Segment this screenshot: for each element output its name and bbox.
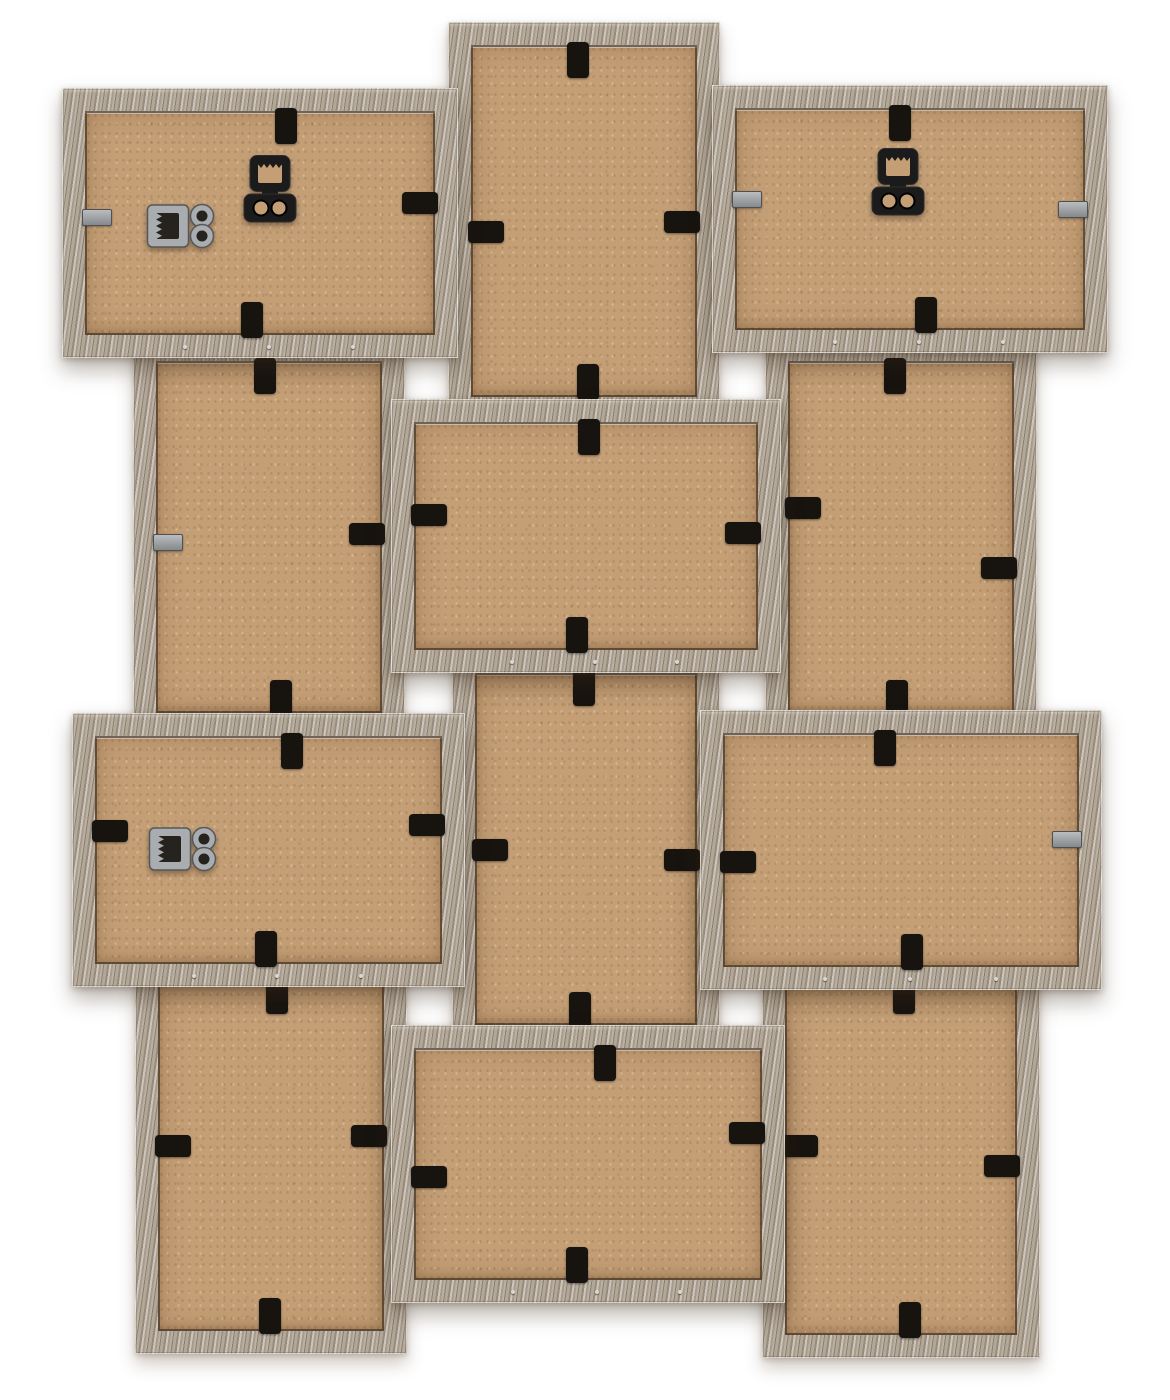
mdf-backing-board bbox=[723, 733, 1079, 967]
retainer-clip bbox=[155, 1135, 191, 1157]
mdf-backing-board bbox=[475, 673, 697, 1025]
retainer-clip bbox=[984, 1155, 1020, 1177]
screw-dot bbox=[351, 345, 355, 349]
retainer-clip bbox=[725, 522, 761, 544]
retainer-clip bbox=[578, 419, 600, 455]
glazing-tab bbox=[82, 209, 112, 226]
mdf-backing-board bbox=[785, 981, 1017, 1335]
retainer-clip bbox=[409, 814, 445, 836]
mdf-backing-board bbox=[158, 981, 384, 1331]
retainer-clip bbox=[92, 820, 128, 842]
mdf-backing-board bbox=[735, 108, 1085, 330]
screw-dot bbox=[192, 974, 196, 978]
screw-dot bbox=[833, 340, 837, 344]
photo-frame-back-top-right bbox=[712, 85, 1108, 353]
retainer-clip bbox=[664, 211, 700, 233]
retainer-clip bbox=[899, 1302, 921, 1338]
sawtooth-ring-hanger-icon bbox=[148, 823, 222, 875]
retainer-clip bbox=[577, 364, 599, 400]
retainer-clip bbox=[915, 297, 937, 333]
retainer-clip bbox=[720, 851, 756, 873]
photo-frame-back-lower-right bbox=[700, 710, 1102, 990]
retainer-clip bbox=[349, 523, 385, 545]
retainer-clip bbox=[567, 42, 589, 78]
photo-frame-back-center bbox=[391, 399, 781, 673]
photo-frame-back-middle-left bbox=[133, 338, 405, 736]
retainer-clip bbox=[889, 105, 911, 141]
retainer-clip bbox=[472, 839, 508, 861]
retainer-clip bbox=[566, 1247, 588, 1283]
retainer-clip bbox=[402, 192, 438, 214]
collage-frame-rear-photo bbox=[0, 0, 1170, 1400]
retainer-clip bbox=[901, 934, 923, 970]
mdf-backing-board bbox=[788, 361, 1014, 713]
photo-frame-back-top-center bbox=[448, 22, 720, 420]
retainer-clip bbox=[241, 302, 263, 338]
retainer-clip bbox=[874, 730, 896, 766]
sawtooth-keyhole-hanger-icon bbox=[870, 147, 926, 217]
photo-frame-back-lower-center bbox=[452, 650, 720, 1048]
retainer-clip bbox=[729, 1122, 765, 1144]
retainer-clip bbox=[468, 221, 504, 243]
sawtooth-ring-hanger-icon bbox=[146, 200, 220, 252]
retainer-clip bbox=[411, 1166, 447, 1188]
screw-dot bbox=[675, 660, 679, 664]
mdf-backing-board bbox=[414, 422, 758, 650]
retainer-clip bbox=[566, 617, 588, 653]
retainer-clip bbox=[981, 557, 1017, 579]
sawtooth-keyhole-hanger-icon bbox=[242, 154, 298, 224]
retainer-clip bbox=[785, 497, 821, 519]
screw-dot bbox=[823, 977, 827, 981]
screw-dot bbox=[595, 1290, 599, 1294]
screw-dot bbox=[917, 340, 921, 344]
photo-frame-back-bottom-right bbox=[762, 958, 1040, 1358]
screw-dot bbox=[275, 974, 279, 978]
retainer-clip bbox=[411, 504, 447, 526]
screw-dot bbox=[908, 977, 912, 981]
screw-dot bbox=[183, 345, 187, 349]
screw-dot bbox=[1001, 340, 1005, 344]
retainer-clip bbox=[259, 1298, 281, 1334]
screw-dot bbox=[510, 660, 514, 664]
glazing-tab bbox=[1058, 201, 1088, 218]
retainer-clip bbox=[569, 992, 591, 1028]
retainer-clip bbox=[281, 733, 303, 769]
photo-frame-back-lower-left bbox=[72, 713, 465, 987]
screw-dot bbox=[593, 660, 597, 664]
retainer-clip bbox=[255, 931, 277, 967]
retainer-clip bbox=[275, 108, 297, 144]
retainer-clip bbox=[351, 1125, 387, 1147]
glazing-tab bbox=[153, 534, 183, 551]
retainer-clip bbox=[594, 1045, 616, 1081]
retainer-clip bbox=[270, 680, 292, 716]
retainer-clip bbox=[782, 1135, 818, 1157]
photo-frame-back-top-left bbox=[62, 88, 458, 358]
screw-dot bbox=[359, 974, 363, 978]
photo-frame-back-bottom-center bbox=[391, 1025, 785, 1303]
screw-dot bbox=[511, 1290, 515, 1294]
glazing-tab bbox=[732, 191, 762, 208]
retainer-clip bbox=[884, 358, 906, 394]
screw-dot bbox=[678, 1290, 682, 1294]
glazing-tab bbox=[1052, 831, 1082, 848]
retainer-clip bbox=[573, 670, 595, 706]
photo-frame-back-middle-right bbox=[765, 338, 1037, 736]
photo-frame-back-bottom-left bbox=[135, 958, 407, 1354]
mdf-backing-board bbox=[414, 1048, 762, 1280]
retainer-clip bbox=[664, 849, 700, 871]
screw-dot bbox=[994, 977, 998, 981]
retainer-clip bbox=[254, 358, 276, 394]
screw-dot bbox=[267, 345, 271, 349]
